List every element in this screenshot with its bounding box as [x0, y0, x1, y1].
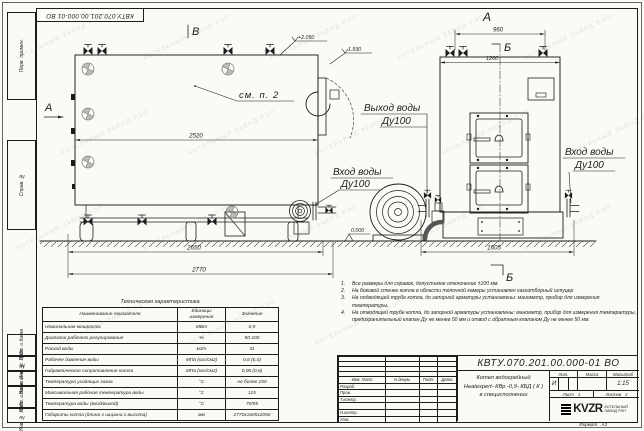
title-block: Изм. Лист N докум. Подп. Дата Разраб. Пр…: [337, 355, 638, 423]
spec-row: Температура воды (вход/выход)°С70/95: [43, 399, 279, 410]
view-label-a-top: А: [482, 10, 491, 24]
spec-c ell: Габариты котла (длина х ширина х высота): [43, 410, 178, 421]
spec-header-name: Наименование показателя: [43, 308, 178, 322]
inlet-label-front: Вход воды: [565, 147, 614, 158]
spec-cell: м3/ч: [178, 344, 226, 355]
title-block-header-row: Изм. Лист N докум. Подп. Дата: [339, 377, 457, 384]
outlet-dn: Ду100: [381, 116, 411, 127]
title-block-left-grid: Изм. Лист N докум. Подп. Дата Разраб. Пр…: [338, 356, 457, 423]
spec-cell: Температура уходящих газов: [43, 377, 178, 388]
spec-cell: 0,06 (0,6): [226, 366, 279, 377]
spec-cell: 0,9: [226, 322, 279, 333]
product-name-line2: Heatexpert- КВр -0,9- КБД ( К ): [458, 383, 549, 392]
spec-cell: 31: [226, 344, 279, 355]
spec-cell: Температура воды (вход/выход): [43, 399, 178, 410]
note-text: На отводящей трубе котла, до запорной ар…: [352, 310, 637, 324]
outlet-label: Выход воды: [364, 103, 421, 114]
sheets-label: Листов: [605, 392, 621, 397]
sheet-value: 1: [578, 392, 580, 397]
spec-cell: 50-100: [226, 333, 279, 344]
strip-cell-perv-primen: Перв. примен.: [7, 12, 36, 100]
spec-row: Габариты котла (длина х ширина х высота)…: [43, 410, 279, 421]
row-utv: Утв.: [339, 416, 386, 423]
spec-row: Номинальная мощностьМВт0,9: [43, 322, 279, 333]
col-data: Дата: [438, 377, 457, 384]
company-name: КОТЕЛЬНЫЙ ЗАВОД РЭП: [605, 405, 628, 414]
spec-cell: Гидравлическое сопротивление котла: [43, 366, 178, 377]
product-name-line3: в специсполнении: [458, 391, 549, 400]
spec-cell: МВт: [178, 322, 226, 333]
note-number: 2.: [339, 288, 352, 295]
doc-number-rotated: КВТУ.070.201.00.000-01 ВО: [46, 12, 134, 19]
inlet-dn-side: Ду100: [340, 179, 370, 190]
sheet-label: Лист: [563, 392, 574, 397]
dim-2520: 2520: [188, 133, 203, 140]
spec-cell: 0,6 (6,0): [226, 355, 279, 366]
spec-table-title: Техническая характеристика: [42, 299, 278, 305]
row-razrab: Разраб.: [339, 383, 386, 390]
sheets-cell: Листов 2: [594, 391, 639, 397]
spec-cell: МПа (кгс/см2): [178, 366, 226, 377]
spec-row: Температура уходящих газов°Сне более 250: [43, 377, 279, 388]
sheets-value: 2: [625, 392, 627, 397]
note-number: 3.: [339, 295, 352, 309]
elevation-top: +2.050: [298, 35, 314, 41]
title-block-right: Лит. Масса Масштаб И 1:15 Лист 1 Листов …: [549, 371, 639, 421]
format-label: Формат: [579, 422, 597, 427]
spec-header-value: Значение: [226, 308, 279, 322]
strip-cell-inv-podl: Инв. № подл.: [7, 408, 36, 423]
col-podp: Подп.: [420, 377, 438, 384]
row-nkontr: Н.контр.: [339, 409, 386, 416]
kvzr-logo-text: KVZR: [573, 403, 602, 415]
format-value: А3: [601, 422, 607, 427]
control-panel: [528, 78, 554, 100]
format-note: Формат А3: [548, 422, 638, 427]
furnace-door-upper: [467, 113, 530, 163]
see-note-ref: см. п. 2: [239, 90, 279, 101]
lit-value: И: [550, 378, 559, 390]
notes-block: 1.Все размеры для справок, допустимое от…: [339, 281, 637, 324]
inlet-dn-front: Ду100: [574, 160, 604, 171]
title-block-name: Котел водогрейный Heatexpert- КВр -0,9- …: [457, 371, 549, 421]
spec-cell: °С: [178, 377, 226, 388]
spec-cell: Максимальная рабочая температура воды: [43, 388, 178, 399]
pipe-labels: Выход воды Ду100 Вход воды Ду100 Вход во…: [313, 103, 625, 206]
spec-cell: мм: [178, 410, 226, 421]
scale-header: Масштаб: [607, 371, 639, 377]
elevation-mid: 1.930: [348, 47, 361, 53]
dimensions: 2520 2650 2770 960 1260 1605: [68, 28, 574, 279]
spec-cell: Диапазон рабочего регулирования: [43, 333, 178, 344]
flue-duct: [306, 78, 354, 138]
dim-960: 960: [493, 28, 504, 34]
view-label-b: В: [192, 26, 199, 38]
product-name-line1: Котел водогрейный: [458, 374, 549, 383]
spec-row: Диапазон рабочего регулирования%50-100: [43, 333, 279, 344]
drawing-sheet: { "doc": { "number": "КВТУ.070.201.00.00…: [0, 0, 644, 430]
note-number: 1.: [339, 281, 352, 288]
spec-cell: МПа (кгс/см2): [178, 355, 226, 366]
section-label-b-top: Б: [504, 42, 511, 54]
spec-row: Расход водым3/ч31: [43, 344, 279, 355]
mass-value: [578, 378, 607, 390]
row-tkontr: Т.контр.: [339, 396, 386, 403]
sheet-cell: Лист 1: [550, 391, 594, 397]
dim-1260: 1260: [486, 56, 499, 62]
blower-duct: [425, 203, 444, 239]
kvzr-logo-mark-icon: [561, 404, 571, 415]
boiler-side-view: [71, 45, 354, 242]
blower-fan: [370, 184, 426, 241]
strip-cell-sprav: Справ. №: [7, 140, 36, 230]
view-label-a-arrow: А: [44, 102, 52, 114]
lit-cell-2: [559, 378, 568, 390]
ground-line: [40, 241, 596, 247]
strip-label: Инв. № подл.: [19, 400, 25, 431]
spec-header-row: Наименование показателя Единицы измерени…: [43, 308, 279, 322]
spec-row: Гидравлическое сопротивление котлаМПа (к…: [43, 366, 279, 377]
spec-cell: 115: [226, 388, 279, 399]
company-logo-cell: KVZR КОТЕЛЬНЫЙ ЗАВОД РЭП: [550, 398, 639, 421]
doc-number-box: КВТУ.070.201.00.000-01 ВО: [36, 8, 144, 22]
col-n-dokum: N докум.: [386, 377, 420, 384]
inlet-flange: [567, 199, 579, 217]
lit-cell-3: [569, 378, 578, 390]
mass-header: Масса: [578, 371, 607, 377]
spec-table-block: Техническая характеристика Наименование …: [42, 299, 278, 421]
spec-cell: Рабочее давление воды: [43, 355, 178, 366]
scale-value: 1:15: [607, 378, 639, 390]
spec-cell: %: [178, 333, 226, 344]
strip-label: Перв. примен.: [19, 39, 25, 72]
elevation-zero: 0.000: [351, 228, 364, 234]
spec-cell: °С: [178, 399, 226, 410]
spec-cell: Номинальная мощность: [43, 322, 178, 333]
dim-2770: 2770: [191, 267, 206, 274]
note-3: 3.На подводящей трубе котла, до запорной…: [339, 295, 637, 309]
spec-header-unit: Единицы измерения: [178, 308, 226, 322]
spec-cell: 70/95: [226, 399, 279, 410]
dim-1605: 1605: [487, 245, 501, 252]
strip-label: Справ. №: [19, 173, 25, 196]
spec-cell: 2770х1605х2050: [226, 410, 279, 421]
spec-table: Наименование показателя Единицы измерени…: [42, 307, 279, 421]
boiler-drawing: 2520 2650 2770 960 1260 1605: [36, 8, 638, 304]
boiler-front-view: [370, 44, 579, 241]
inlet-label-side: Вход воды: [333, 167, 382, 178]
furnace-door-lower: [467, 165, 530, 213]
spec-cell: Расход воды: [43, 344, 178, 355]
col-izm-list: Изм. Лист: [339, 377, 386, 384]
dim-2650: 2650: [186, 245, 201, 252]
spec-row: Рабочее давление водыМПа (кгс/см2)0,6 (6…: [43, 355, 279, 366]
row-blank: [339, 403, 386, 410]
title-block-doc-number: КВТУ.070.201.00.000-01 ВО: [457, 356, 639, 371]
note-text: На подводящей трубе котла, до запорной а…: [352, 295, 637, 309]
note-4: 4.На отводящей трубе котла, до запорной …: [339, 310, 637, 324]
spec-cell: не более 250: [226, 377, 279, 388]
spec-cell: °С: [178, 388, 226, 399]
company-name-line2: ЗАВОД РЭП: [605, 409, 628, 413]
row-prov: Пров.: [339, 390, 386, 397]
note-number: 4.: [339, 310, 352, 324]
spec-row: Максимальная рабочая температура воды°С1…: [43, 388, 279, 399]
lit-header: Лит.: [550, 371, 578, 377]
